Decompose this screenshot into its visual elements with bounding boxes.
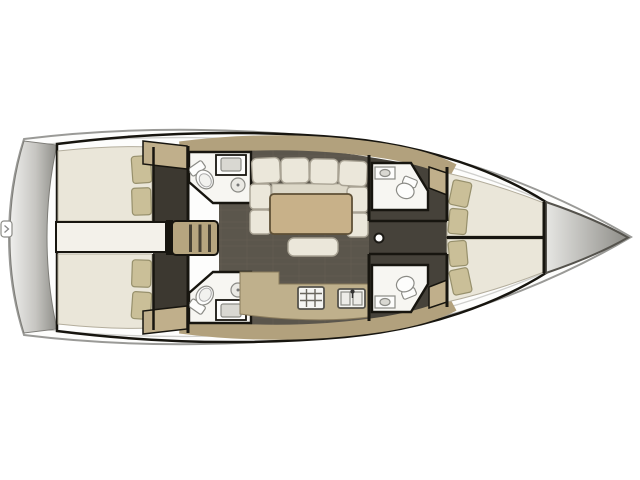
aft-port-locker xyxy=(143,141,187,169)
aft-port-sink xyxy=(216,155,246,175)
sofa-back-cushion-2 xyxy=(281,158,309,183)
sofa-back-cushion-1 xyxy=(251,157,280,183)
sofa-back-cushion-3 xyxy=(310,159,338,184)
fwd-pillow-3 xyxy=(448,240,468,266)
sofa-back-cushion-4 xyxy=(338,160,367,186)
salon-table xyxy=(270,194,352,234)
aft-starboard-pillow-2 xyxy=(132,260,152,288)
aft-starboard-locker xyxy=(143,306,187,334)
salon-bench xyxy=(288,238,338,256)
mast-post xyxy=(375,234,384,243)
galley-sink xyxy=(338,289,365,308)
sofa-left-cushion-2 xyxy=(250,210,271,234)
yacht-floorplan xyxy=(0,0,640,480)
companionway-stairs xyxy=(172,221,218,255)
fwd-port-sink xyxy=(375,167,395,179)
fwd-starboard-sink xyxy=(375,296,395,308)
sofa-left-cushion-1 xyxy=(250,184,271,209)
aft-port-pillow-2 xyxy=(132,188,152,216)
galley-stove xyxy=(298,287,324,309)
swim-ladder-tab xyxy=(1,221,12,237)
walkway xyxy=(56,222,166,252)
yacht-floorplan-canvas xyxy=(0,0,640,480)
fwd-pillow-2 xyxy=(448,208,468,234)
aft-port-shower-drain xyxy=(231,178,245,192)
